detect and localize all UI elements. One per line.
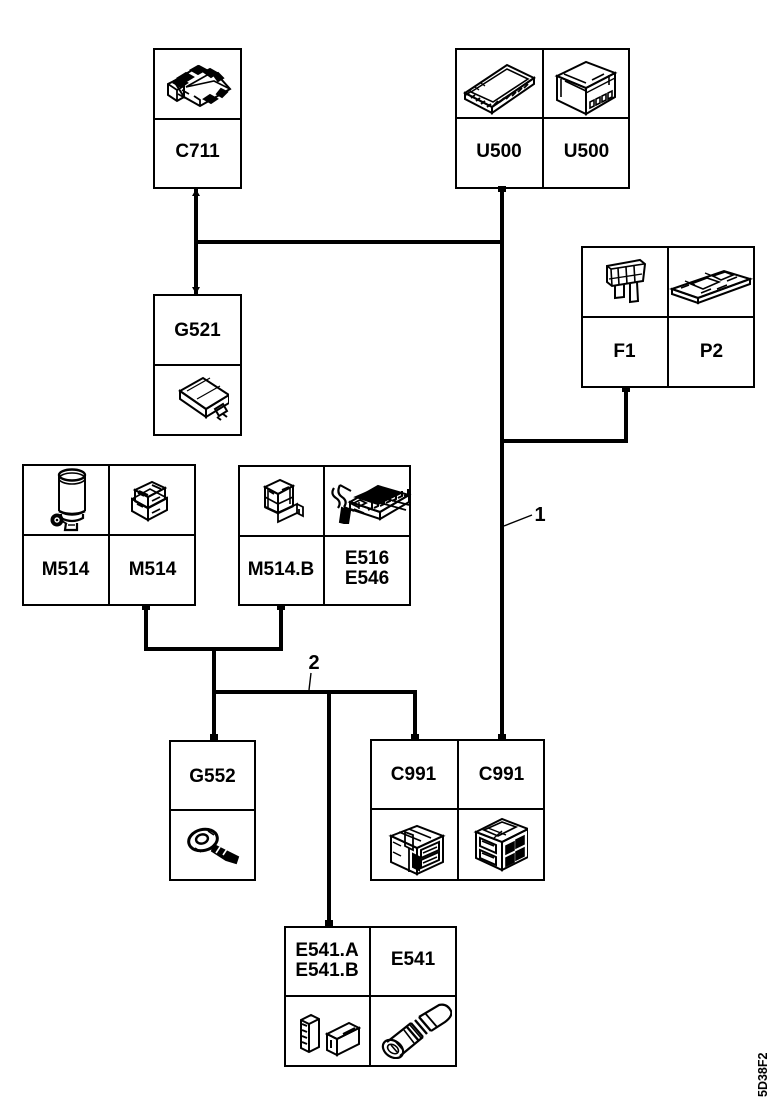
svg-text:5D38F2: 5D38F2 xyxy=(756,1052,770,1097)
